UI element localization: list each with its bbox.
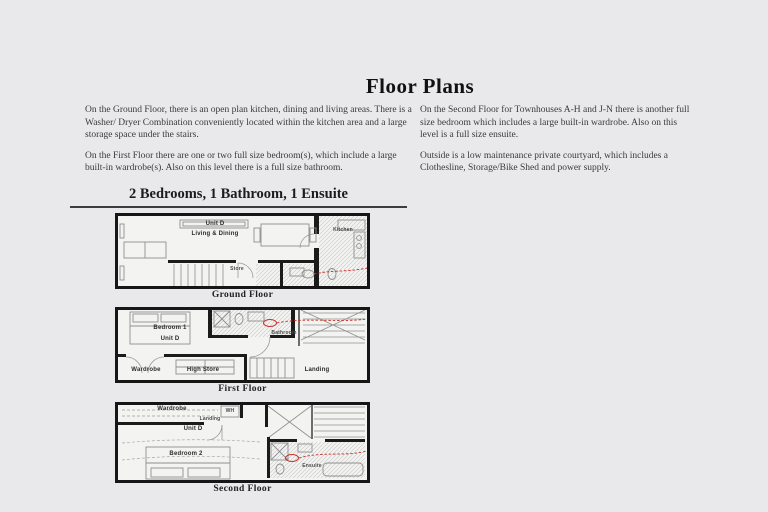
label-unit-d-ground: Unit D bbox=[206, 221, 225, 227]
outside-paragraph: Outside is a low maintenance private cou… bbox=[420, 150, 692, 175]
intro-right-column: On the Second Floor for Townhouses A-H a… bbox=[420, 104, 692, 183]
label-ensuite: Ensuite bbox=[302, 463, 321, 469]
page-title: Floor Plans bbox=[260, 74, 580, 99]
floor-plans-page: Floor Plans On the Ground Floor, there i… bbox=[0, 0, 768, 512]
second-floor-plan: Wardrobe WH Landing Unit D Bedroom 2 Ens… bbox=[115, 402, 370, 483]
label-bedroom-1: Bedroom 1 bbox=[153, 325, 186, 331]
ground-floor-caption: Ground Floor bbox=[115, 290, 370, 300]
label-wh: WH bbox=[226, 408, 235, 414]
first-floor-plan: Bedroom 1 Unit D Bathroom Wardrobe High … bbox=[115, 307, 370, 383]
label-unit-d-first: Unit D bbox=[161, 336, 180, 342]
ground-floor-drawing bbox=[118, 216, 367, 286]
second-floor-drawing bbox=[118, 405, 367, 480]
label-landing-first: Landing bbox=[305, 367, 330, 373]
second-floor-paragraph: On the Second Floor for Townhouses A-H a… bbox=[420, 104, 692, 142]
section-heading: 2 Bedrooms, 1 Bathroom, 1 Ensuite bbox=[70, 186, 407, 203]
label-landing-second: Landing bbox=[200, 416, 221, 422]
label-unit-d-second: Unit D bbox=[184, 426, 203, 432]
label-bathroom: Bathroom bbox=[271, 330, 296, 336]
intro-left-column: On the Ground Floor, there is an open pl… bbox=[85, 104, 413, 183]
second-floor-caption: Second Floor bbox=[115, 484, 370, 494]
label-high-store: High Store bbox=[187, 367, 219, 373]
label-living-dining: Living & Dining bbox=[192, 231, 239, 237]
heading-underline bbox=[70, 206, 407, 208]
ground-floor-plan: Unit D Living & Dining Kitchen Store bbox=[115, 213, 370, 289]
label-wardrobe-second: Wardrobe bbox=[157, 406, 186, 412]
first-floor-caption: First Floor bbox=[115, 384, 370, 394]
ground-floor-paragraph: On the Ground Floor, there is an open pl… bbox=[85, 104, 413, 142]
label-store: Store bbox=[230, 266, 244, 272]
label-wardrobe-first: Wardrobe bbox=[131, 367, 160, 373]
first-floor-paragraph: On the First Floor there are one or two … bbox=[85, 150, 413, 175]
label-bedroom-2: Bedroom 2 bbox=[169, 451, 202, 457]
label-kitchen: Kitchen bbox=[333, 227, 353, 233]
